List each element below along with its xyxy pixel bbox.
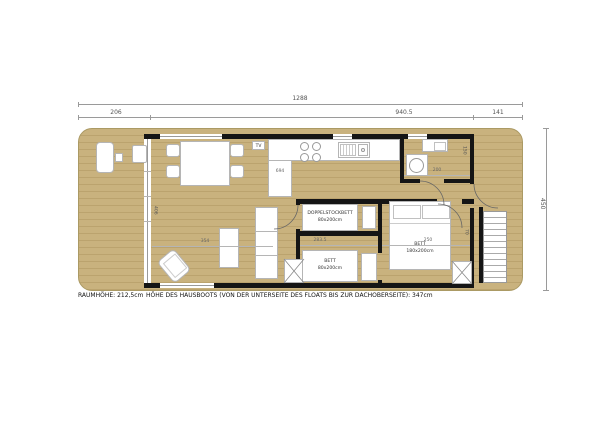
blanket-fold — [390, 223, 450, 224]
wardrobe-bedroom — [452, 261, 472, 284]
glass-mullion — [144, 196, 151, 197]
dining-chair — [230, 165, 244, 178]
wall-bedroom1-left — [296, 199, 300, 205]
dim-tick — [78, 102, 79, 107]
staircase — [483, 211, 507, 283]
single-bed-label: BETT 80x200cm — [303, 259, 357, 273]
glass-mullion — [144, 221, 151, 222]
single-bed-name: BETT — [303, 259, 357, 266]
dim-rear-deck: 141 — [478, 110, 518, 116]
dining-table — [180, 141, 230, 186]
stove-burner — [300, 153, 309, 162]
wall-bathroom-bottom — [404, 179, 420, 183]
dining-chair — [166, 144, 180, 157]
pillow — [422, 205, 450, 219]
sink-drainboard — [340, 144, 356, 156]
bunk-bed-size: 80x200cm — [303, 218, 357, 225]
double-bed-size: 180x200cm — [390, 249, 450, 256]
stove-burner — [312, 142, 321, 151]
window-front — [160, 134, 222, 139]
terrace-lounger — [96, 142, 114, 173]
dim-front-deck: 206 — [96, 110, 136, 116]
pillow — [393, 205, 421, 219]
wall-bottom — [214, 283, 474, 288]
note-room-height: RAUMHÖHE: 212,5cm — [78, 292, 143, 299]
dim-door: 70 — [463, 229, 468, 235]
dim-overall-length: 1288 — [280, 96, 320, 102]
wall-bottom — [150, 283, 160, 288]
dining-chair — [230, 144, 244, 157]
wall-left-stub — [144, 283, 151, 288]
dim-line-bedrooms — [300, 245, 378, 246]
sofa-seam — [256, 231, 277, 232]
sofa — [255, 207, 278, 279]
note-boat-height: HÖHE DES HAUSBOOTS (VON DER UNTERSEITE D… — [146, 292, 433, 299]
tv-unit: TV — [252, 141, 265, 150]
stove-burner — [300, 142, 309, 151]
wall-between-bedrooms — [300, 231, 378, 236]
single-bed: BETT 80x200cm — [302, 250, 358, 282]
dim-line-segments — [78, 117, 523, 118]
wall-bedroom-large-left — [378, 280, 382, 288]
dim-bedrooms-span: 283.5 — [300, 239, 340, 244]
terrace-side-table — [115, 153, 123, 162]
wall-bathroom-bottom — [444, 179, 474, 183]
dim-bedroom-right: 250 — [408, 239, 448, 244]
dim-overall-width: 450 — [539, 198, 545, 209]
bunk-bed-label: DOPPELSTOCKBETT 80x200cm — [303, 211, 357, 225]
dim-tick — [543, 290, 549, 291]
dim-tick — [522, 115, 523, 120]
dim-line-bath — [404, 175, 470, 176]
coffee-table — [219, 228, 239, 268]
dim-tick — [543, 128, 549, 129]
dim-kitchen: 694 — [264, 170, 296, 175]
wall-top — [150, 134, 160, 139]
sink-faucet — [361, 148, 365, 152]
dim-tick — [150, 115, 151, 120]
dim-line-living — [152, 246, 273, 247]
dim-tick — [78, 115, 79, 120]
dim-line-bedroom-right — [382, 245, 470, 246]
houseboat-floor-plan: 1288 206 940.5 141 450 — [0, 0, 600, 424]
dim-living-width: 406 — [152, 206, 157, 215]
wall-right — [470, 134, 474, 184]
dim-line-width — [546, 128, 547, 291]
dim-living-length: 354 — [185, 240, 225, 245]
dim-tick — [522, 102, 523, 107]
wardrobe-living — [284, 259, 304, 283]
terrace-stool — [132, 145, 147, 163]
sofa-seam — [256, 255, 277, 256]
washbasin-bowl — [434, 142, 446, 151]
dim-cabin: 940.5 — [382, 110, 426, 116]
glass-mullion — [144, 171, 151, 172]
door-leaf-bedroom2 — [361, 253, 377, 281]
single-bed-size: 80x200cm — [303, 266, 357, 273]
bunk-bed-name: DOPPELSTOCKBETT — [303, 211, 357, 218]
stove-burner — [312, 153, 321, 162]
dining-chair — [166, 165, 180, 178]
dim-line-overall — [78, 104, 523, 105]
window-living — [160, 283, 214, 288]
dim-bath-width: 200 — [422, 169, 452, 174]
kitchen-counter-top — [268, 139, 400, 161]
nightstand — [362, 206, 376, 229]
dim-bath-depth: 150 — [461, 146, 466, 155]
wall-left-stub — [144, 134, 151, 139]
wall-bedrooms-top — [462, 199, 474, 204]
dim-tick — [473, 115, 474, 120]
bunk-bed: DOPPELSTOCKBETT 80x200cm — [302, 204, 358, 231]
double-bed: BETT 180x200cm — [389, 201, 451, 270]
